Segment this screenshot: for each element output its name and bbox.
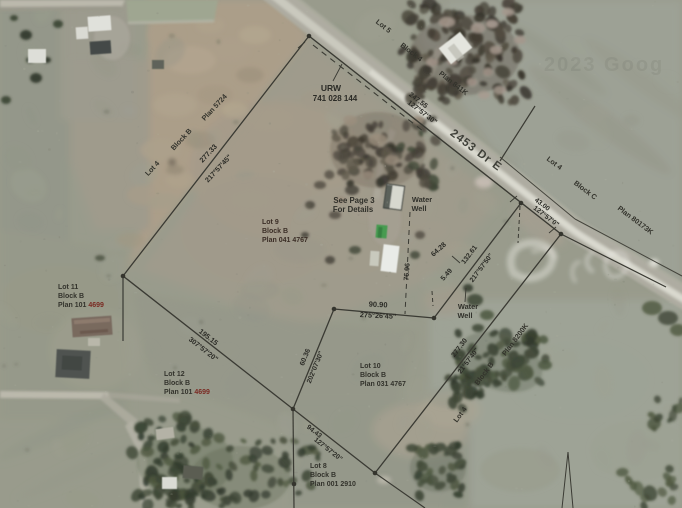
svg-text:URW: URW bbox=[321, 83, 342, 93]
svg-text:Water: Water bbox=[458, 302, 478, 311]
svg-text:Well: Well bbox=[411, 204, 426, 213]
svg-text:Plan 031 4767: Plan 031 4767 bbox=[360, 381, 406, 388]
svg-text:Plan 001 2910: Plan 001 2910 bbox=[310, 481, 356, 488]
svg-text:Block B: Block B bbox=[262, 228, 288, 235]
svg-text:Lot 10: Lot 10 bbox=[360, 363, 381, 370]
svg-text:Block B: Block B bbox=[164, 380, 190, 387]
svg-text:Lot 9: Lot 9 bbox=[262, 219, 279, 226]
svg-text:Plan 041 4767: Plan 041 4767 bbox=[262, 237, 308, 244]
svg-text:For Details: For Details bbox=[333, 205, 374, 214]
svg-text:See Page 3: See Page 3 bbox=[333, 196, 375, 205]
svg-text:Block B: Block B bbox=[310, 472, 336, 479]
svg-text:Lot 8: Lot 8 bbox=[310, 463, 327, 470]
svg-text:Block B: Block B bbox=[360, 372, 386, 379]
svg-text:76.96: 76.96 bbox=[403, 263, 411, 281]
svg-text:Block B: Block B bbox=[58, 293, 84, 300]
svg-text:Water: Water bbox=[412, 195, 432, 204]
svg-text:Lot 12: Lot 12 bbox=[164, 371, 185, 378]
svg-text:Plan 101 4699: Plan 101 4699 bbox=[164, 389, 210, 396]
svg-text:90.90: 90.90 bbox=[369, 300, 388, 310]
svg-text:Lot 11: Lot 11 bbox=[58, 284, 78, 291]
svg-text:741 028 144: 741 028 144 bbox=[313, 94, 358, 103]
svg-text:Plan 101 4699: Plan 101 4699 bbox=[58, 302, 104, 309]
svg-text:275°26'45": 275°26'45" bbox=[360, 310, 397, 321]
svg-text:Well: Well bbox=[457, 311, 472, 320]
